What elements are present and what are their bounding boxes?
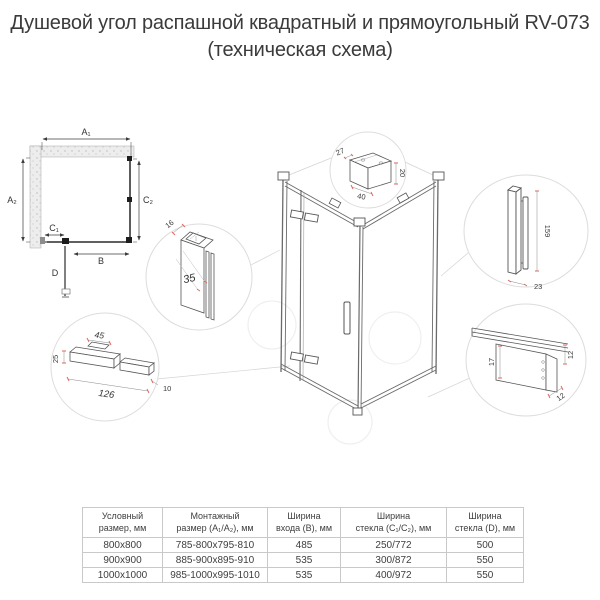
plan-glass [47,158,130,242]
col-header-nominal-size: Условный размер, мм [83,508,163,538]
col-header-glass-width-c: Ширина стекла (С₁/С₂), мм [341,508,447,538]
wall-left [30,146,41,248]
bracket-dim-height: 20 [398,169,407,177]
cell-entrance: 535 [268,553,341,568]
top-bracket-left [329,198,341,208]
col-header-entrance-width: Ширина входа (В), мм [268,508,341,538]
cell-mounting: 985-1000x995-1010 [163,568,268,583]
handle-dim-height: 159 [543,225,552,238]
cell-entrance: 485 [268,538,341,553]
hinge-dim-plate: 45 [94,329,105,340]
bracket-dim-width: 40 [357,191,367,201]
detail-bracket: 27 20 40 [330,132,407,208]
col-header-glass-width-d: Ширина стекла (D), мм [447,508,524,538]
cell-glass-c: 250/772 [341,538,447,553]
door-handle [344,302,350,334]
cell-glass-d: 550 [447,568,524,583]
top-bracket-right [397,193,409,203]
cell-nominal: 1000x1000 [83,568,163,583]
cell-glass-d: 500 [447,538,524,553]
plan-door-leaf [62,246,70,297]
wall-top [30,146,134,157]
plan-dim-b: B [98,256,104,266]
detail-bottom-profile: 17 12 12 [466,304,586,416]
title-line1: Душевой угол распашной квадратный и прям… [0,10,600,37]
isometric-view [278,172,444,415]
page: { "title": { "line1": "Душевой угол расп… [0,0,600,600]
cell-glass-d: 550 [447,553,524,568]
cell-mounting: 785-800x795-810 [163,538,268,553]
cell-glass-c: 300/872 [341,553,447,568]
bottom-dim-glass: 17 [487,358,496,366]
col-header-mounting-size: Монтажный размер (А₁/А₂), мм [163,508,268,538]
hinge-bottom [290,352,318,364]
plan-dim-a1: A₁ [81,127,90,137]
plan-dim-c1: C₁ [49,223,59,233]
detail-hinge: 45 25 126 10 [51,313,171,421]
cell-nominal: 800x800 [83,538,163,553]
page-title: Душевой угол распашной квадратный и прям… [0,10,600,64]
plan-dim-c2: C₂ [143,195,153,205]
bottom-dim-height: 12 [566,351,575,359]
handle-dim-depth: 23 [534,282,542,291]
table-row: 800x800 785-800x795-810 485 250/772 500 [83,538,524,553]
table-header-row: Условный размер, мм Монтажный размер (А₁… [83,508,524,538]
hinge-dim-height: 25 [51,355,60,363]
dimensions-table: Условный размер, мм Монтажный размер (А₁… [82,507,524,583]
background-arcs [248,301,421,444]
table-row: 900x900 885-900x895-910 535 300/872 550 [83,553,524,568]
wall-profile-dim-thickness: 16 [163,218,175,230]
technical-drawing: A₁ A₂ C₂ C₁ B D [0,100,600,500]
hinge-top [290,210,318,222]
detail-wall-profile: 16 35 [146,218,252,330]
plan-dim-d: D [52,268,59,278]
hinge-dim-length: 126 [98,388,116,401]
hinge-dim-depth: 10 [163,384,171,393]
cell-nominal: 900x900 [83,553,163,568]
title-line2: (техническая схема) [0,37,600,64]
cell-glass-c: 400/972 [341,568,447,583]
plan-view: A₁ A₂ C₂ C₁ B D [7,127,153,297]
table-row: 1000x1000 985-1000x995-1010 535 400/972 … [83,568,524,583]
detail-handle: 159 23 [464,175,588,291]
cell-entrance: 535 [268,568,341,583]
cell-mounting: 885-900x895-910 [163,553,268,568]
plan-dim-a2: A₂ [7,195,17,205]
